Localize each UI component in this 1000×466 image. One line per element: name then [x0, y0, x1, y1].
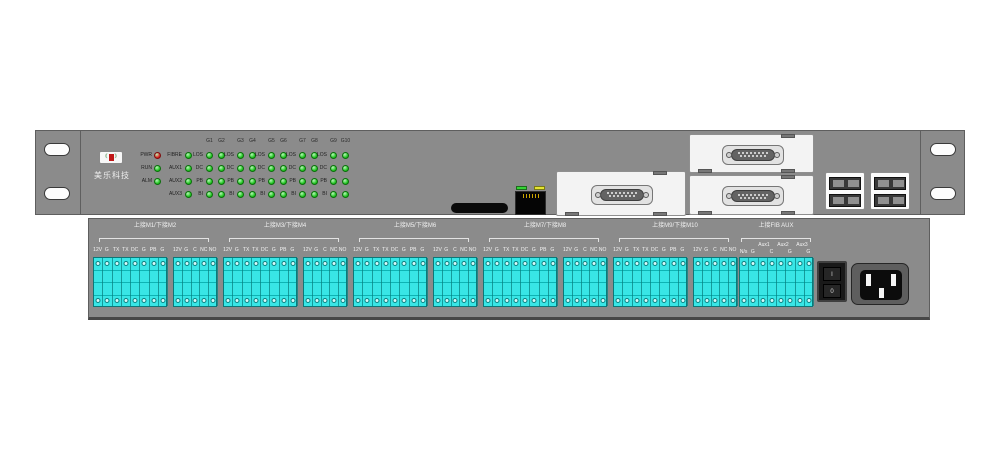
terminal-screw: [541, 298, 546, 303]
section-title: 上接M7/下接M8: [483, 223, 607, 230]
db15-shell: [731, 149, 775, 161]
section-title: 上接M9/下接M10: [613, 223, 737, 230]
mount-slot: [930, 187, 956, 200]
terminal-cell[interactable]: [512, 258, 521, 306]
terminal-cell[interactable]: [694, 258, 703, 306]
db15-module-plate: [689, 175, 814, 215]
terminal-cell[interactable]: [460, 258, 469, 306]
terminal-cell[interactable]: [530, 258, 539, 306]
terminal-screw: [96, 261, 101, 266]
terminal-cell[interactable]: [354, 258, 363, 306]
terminal-cell[interactable]: [270, 258, 279, 306]
terminal-screw: [253, 261, 258, 266]
terminal-screw: [788, 298, 793, 303]
section-bracket: [619, 238, 729, 242]
terminal-label: G: [801, 249, 816, 255]
terminal-cell[interactable]: [768, 258, 777, 306]
terminal-cell[interactable]: [304, 258, 313, 306]
led-label-channel: PB: [253, 178, 265, 185]
terminal-screw: [592, 261, 597, 266]
terminal-cell[interactable]: [540, 258, 549, 306]
power-inlet-face: [860, 270, 902, 300]
fiber-duplex-adapter[interactable]: [874, 194, 906, 207]
terminal-screw: [532, 298, 537, 303]
section-title: 上接FIB AUX: [731, 223, 821, 230]
inlet-prong: [879, 288, 884, 298]
terminal-screw: [272, 298, 277, 303]
terminal-cell[interactable]: [280, 258, 289, 306]
plate-tab: [653, 171, 667, 175]
terminal-cell[interactable]: [330, 258, 339, 306]
terminal-screw: [671, 298, 676, 303]
terminal-cell[interactable]: [805, 258, 814, 306]
power-switch[interactable]: I 0: [817, 261, 847, 302]
terminal-screw: [713, 261, 718, 266]
db15-pin: [766, 194, 768, 196]
terminal-cell[interactable]: [183, 258, 192, 306]
status-led: [206, 178, 213, 185]
terminal-screw: [365, 298, 370, 303]
terminal-cell[interactable]: [373, 258, 382, 306]
terminal-cell[interactable]: [623, 258, 632, 306]
front-panel: 《 》 美乐科技 G1G2G3G4G5G6G7G8G9G10PWRFIBRELO…: [35, 130, 965, 215]
terminal-cell[interactable]: [642, 258, 651, 306]
db15-shell: [600, 189, 644, 201]
terminal-cell[interactable]: [729, 258, 738, 306]
terminal-screw: [105, 298, 110, 303]
terminal-screw: [550, 261, 555, 266]
terminal-cell[interactable]: [150, 258, 159, 306]
db15-screw: [774, 193, 780, 199]
db15-pin: [758, 152, 760, 154]
status-led: [299, 165, 306, 172]
status-led: [237, 165, 244, 172]
terminal-screw: [383, 298, 388, 303]
led-group-header: G8: [307, 138, 322, 144]
terminal-screw: [281, 261, 286, 266]
db15-pin: [764, 197, 766, 199]
status-led: [237, 152, 244, 159]
terminal-screw: [806, 261, 811, 266]
status-led: [154, 165, 161, 172]
status-led: [299, 178, 306, 185]
db15-connector[interactable]: [591, 185, 653, 205]
terminal-cell[interactable]: [720, 258, 729, 306]
db15-connector[interactable]: [722, 145, 784, 165]
terminal-screw: [332, 261, 337, 266]
terminal-screw: [583, 298, 588, 303]
led-label-channel: LOS: [284, 152, 296, 159]
db15-pin: [633, 195, 635, 197]
terminal-cell[interactable]: [712, 258, 721, 306]
terminal-screw: [314, 298, 319, 303]
status-led: [154, 152, 161, 159]
fiber-port: [878, 197, 889, 204]
db15-pin-row: [740, 197, 766, 199]
terminal-cell[interactable]: [493, 258, 502, 306]
terminal-screw: [695, 298, 700, 303]
db15-pin: [611, 192, 613, 194]
terminal-screw: [444, 298, 449, 303]
terminal-screw: [281, 298, 286, 303]
db15-pin: [623, 192, 625, 194]
rj45-port[interactable]: [515, 186, 546, 215]
terminal-screw: [226, 298, 231, 303]
plate-tab: [698, 211, 712, 215]
terminal-screw: [444, 261, 449, 266]
terminal-screw: [565, 298, 570, 303]
db15-pin: [625, 195, 627, 197]
db15-screw: [774, 152, 780, 158]
terminal-screw: [323, 261, 328, 266]
terminal-screw: [513, 298, 518, 303]
terminal-label: G: [745, 249, 760, 255]
led-label-channel: DC: [315, 165, 327, 172]
activity-led-yellow: [534, 186, 545, 190]
terminal-screw: [513, 261, 518, 266]
db15-pin: [754, 194, 756, 196]
terminal-screw: [486, 261, 491, 266]
terminal-cell[interactable]: [410, 258, 419, 306]
terminal-screw: [356, 261, 361, 266]
db15-pin: [752, 197, 754, 199]
terminal-screw: [574, 261, 579, 266]
terminal-cell[interactable]: [564, 258, 573, 306]
terminal-screw: [253, 298, 258, 303]
terminal-cell[interactable]: [443, 258, 452, 306]
terminal-screw: [731, 298, 736, 303]
terminal-screw: [806, 298, 811, 303]
led-label-channel: PB: [315, 178, 327, 185]
terminal-cell[interactable]: [796, 258, 805, 306]
db15-pin-row: [609, 195, 635, 197]
status-led: [342, 178, 349, 185]
terminal-block-relay[interactable]: [693, 257, 737, 307]
terminal-screw: [532, 261, 537, 266]
terminal-screw: [495, 298, 500, 303]
status-led: [330, 178, 337, 185]
led-label-channel: BI: [222, 191, 234, 198]
terminal-cell[interactable]: [749, 258, 758, 306]
led-label-aux: AUX2: [162, 178, 182, 185]
terminal-screw: [680, 261, 685, 266]
plate-tab: [565, 212, 579, 216]
mount-slot: [44, 143, 70, 156]
db15-pin-row: [738, 194, 768, 196]
terminal-screw: [435, 298, 440, 303]
terminal-cell[interactable]: [703, 258, 712, 306]
terminal-cell[interactable]: [174, 258, 183, 306]
terminal-screw: [601, 298, 606, 303]
plate-tab: [781, 134, 795, 138]
db15-pin: [627, 192, 629, 194]
terminal-cell[interactable]: [322, 258, 331, 306]
plate-tab: [698, 169, 712, 173]
terminal-cell[interactable]: [103, 258, 112, 306]
terminal-cell[interactable]: [192, 258, 201, 306]
terminal-cell[interactable]: [400, 258, 409, 306]
aux-channel-label: Aux1: [755, 242, 773, 248]
terminal-cell[interactable]: [599, 258, 608, 306]
terminal-cell[interactable]: [452, 258, 461, 306]
led-label-aux: AUX1: [162, 165, 182, 172]
db15-pin: [764, 155, 766, 157]
status-led: [237, 191, 244, 198]
terminal-cell[interactable]: [94, 258, 103, 306]
terminal-screw: [634, 261, 639, 266]
terminal-screw: [420, 298, 425, 303]
db15-module-plate: [689, 134, 814, 173]
terminal-screw: [713, 298, 718, 303]
terminal-screw: [453, 261, 458, 266]
terminal-cell[interactable]: [382, 258, 391, 306]
terminal-cell[interactable]: [484, 258, 493, 306]
terminal-screw: [722, 261, 727, 266]
terminal-cell[interactable]: [590, 258, 599, 306]
terminal-cell[interactable]: [759, 258, 768, 306]
terminal-label: NO: [335, 247, 350, 253]
db15-pin: [613, 195, 615, 197]
terminal-screw: [290, 298, 295, 303]
terminal-cell[interactable]: [419, 258, 428, 306]
db15-connector[interactable]: [722, 186, 784, 206]
db15-pin: [748, 197, 750, 199]
status-led: [268, 152, 275, 159]
terminal-screw: [751, 298, 756, 303]
terminal-screw: [393, 298, 398, 303]
terminal-cell[interactable]: [651, 258, 660, 306]
terminal-cell[interactable]: [243, 258, 252, 306]
terminal-block-relay[interactable]: [433, 257, 477, 307]
led-label-channel: DC: [222, 165, 234, 172]
terminal-block-main[interactable]: [353, 257, 427, 307]
right-ear-divider: [920, 131, 921, 214]
device-drawing: 《 》 美乐科技 G1G2G3G4G5G6G7G8G9G10PWRFIBRELO…: [0, 0, 1000, 466]
terminal-cell[interactable]: [131, 258, 140, 306]
rear-panel: I 0 上接M1/下接M212VGTXTXDCGPBG12VGCNCNO上接M3…: [88, 218, 930, 320]
db15-pin: [617, 195, 619, 197]
terminal-screw: [341, 261, 346, 266]
terminal-cell[interactable]: [363, 258, 372, 306]
status-led: [268, 191, 275, 198]
led-label-channel: LOS: [315, 152, 327, 159]
terminal-cell[interactable]: [633, 258, 642, 306]
terminal-cell[interactable]: [670, 258, 679, 306]
terminal-block-main[interactable]: [223, 257, 297, 307]
led-label-channel: LOS: [191, 152, 203, 159]
terminal-cell[interactable]: [786, 258, 795, 306]
db15-pin-row: [740, 155, 766, 157]
db15-pin: [756, 155, 758, 157]
led-label-channel: LOS: [253, 152, 265, 159]
terminal-screw: [504, 261, 509, 266]
brand-emblem-icon: [109, 154, 114, 161]
terminal-screw: [435, 261, 440, 266]
status-led: [342, 165, 349, 172]
terminal-screw: [760, 261, 765, 266]
terminal-screw: [365, 261, 370, 266]
terminal-cell[interactable]: [252, 258, 261, 306]
status-led: [342, 152, 349, 159]
terminal-screw: [583, 261, 588, 266]
terminal-cell[interactable]: [224, 258, 233, 306]
terminal-screw: [114, 261, 119, 266]
db15-pin: [740, 197, 742, 199]
terminal-screw: [263, 261, 268, 266]
laurel-left-icon: 《: [102, 155, 107, 160]
terminal-screw: [244, 261, 249, 266]
terminal-block-relay[interactable]: [563, 257, 607, 307]
terminal-cell[interactable]: [233, 258, 242, 306]
terminal-screw: [680, 298, 685, 303]
terminal-screw: [722, 298, 727, 303]
terminal-cell[interactable]: [339, 258, 348, 306]
terminal-cell[interactable]: [434, 258, 443, 306]
power-switch-on[interactable]: I: [823, 267, 841, 281]
db15-pin: [629, 195, 631, 197]
terminal-screw: [393, 261, 398, 266]
db15-pin: [762, 152, 764, 154]
terminal-screw: [290, 261, 295, 266]
section-bracket: [99, 238, 209, 242]
terminal-screw: [486, 298, 491, 303]
power-inlet[interactable]: [851, 263, 909, 305]
terminal-screw: [142, 261, 147, 266]
fiber-port: [893, 180, 904, 187]
terminal-cell[interactable]: [777, 258, 786, 306]
terminal-screw: [797, 298, 802, 303]
terminal-screw: [184, 261, 189, 266]
status-led: [154, 178, 161, 185]
brand-logo: 《 》: [99, 151, 123, 164]
terminal-screw: [202, 298, 207, 303]
rj45-pins: [523, 194, 539, 198]
terminal-cell[interactable]: [469, 258, 478, 306]
terminal-cell[interactable]: [140, 258, 149, 306]
terminal-cell[interactable]: [549, 258, 558, 306]
terminal-screw: [383, 261, 388, 266]
terminal-screw: [235, 261, 240, 266]
terminal-block-relay[interactable]: [173, 257, 217, 307]
status-led: [206, 152, 213, 159]
terminal-cell[interactable]: [289, 258, 298, 306]
terminal-screw: [671, 261, 676, 266]
terminal-cell[interactable]: [209, 258, 218, 306]
db15-pin: [746, 194, 748, 196]
terminal-cell[interactable]: [740, 258, 749, 306]
terminal-cell[interactable]: [521, 258, 530, 306]
db15-screw: [726, 193, 732, 199]
terminal-cell[interactable]: [261, 258, 270, 306]
terminal-cell[interactable]: [614, 258, 623, 306]
terminal-cell[interactable]: [503, 258, 512, 306]
terminal-cell[interactable]: [159, 258, 168, 306]
section-title: 上接M5/下接M6: [353, 223, 477, 230]
db15-pin: [744, 155, 746, 157]
terminal-screw: [175, 261, 180, 266]
terminal-screw: [133, 298, 138, 303]
terminal-cell[interactable]: [391, 258, 400, 306]
terminal-screw: [160, 298, 165, 303]
terminal-screw: [123, 298, 128, 303]
section-bracket: [489, 238, 599, 242]
terminal-label: G: [155, 247, 170, 253]
terminal-screw: [616, 298, 621, 303]
fiber-port: [893, 197, 904, 204]
power-switch-off[interactable]: 0: [823, 284, 841, 298]
terminal-screw: [523, 298, 528, 303]
fiber-duplex-adapter[interactable]: [829, 177, 861, 190]
terminal-block-aux[interactable]: [739, 257, 813, 307]
db15-pin: [738, 152, 740, 154]
terminal-cell[interactable]: [679, 258, 688, 306]
terminal-screw: [634, 298, 639, 303]
terminal-block-main[interactable]: [93, 257, 167, 307]
terminal-cell[interactable]: [200, 258, 209, 306]
terminal-screw: [96, 298, 101, 303]
fiber-duplex-adapter[interactable]: [874, 177, 906, 190]
fiber-port: [848, 197, 859, 204]
terminal-cell[interactable]: [122, 258, 131, 306]
led-label-aux: FIBRE: [162, 152, 182, 159]
terminal-screw: [244, 298, 249, 303]
terminal-screw: [742, 298, 747, 303]
terminal-screw: [742, 261, 747, 266]
status-led: [268, 165, 275, 172]
terminal-screw: [471, 298, 476, 303]
status-led: [206, 165, 213, 172]
terminal-label: G: [415, 247, 430, 253]
terminal-block-main[interactable]: [483, 257, 557, 307]
terminal-cell[interactable]: [582, 258, 591, 306]
terminal-cell[interactable]: [113, 258, 122, 306]
terminal-cell[interactable]: [573, 258, 582, 306]
terminal-screw: [341, 298, 346, 303]
card-slot[interactable]: [451, 203, 508, 213]
terminal-screw: [541, 261, 546, 266]
db15-shell: [731, 190, 775, 202]
db15-pin: [742, 194, 744, 196]
section-title: 上接M1/下接M2: [93, 223, 217, 230]
db15-pin: [742, 152, 744, 154]
db15-pin: [621, 195, 623, 197]
terminal-screw: [769, 298, 774, 303]
terminal-cell[interactable]: [660, 258, 669, 306]
db15-pin: [619, 192, 621, 194]
terminal-cell[interactable]: [313, 258, 322, 306]
fiber-duplex-adapter[interactable]: [829, 194, 861, 207]
section-bracket: [359, 238, 469, 242]
db15-pin: [754, 152, 756, 154]
db15-pin: [746, 152, 748, 154]
db15-pin: [615, 192, 617, 194]
terminal-screw: [504, 298, 509, 303]
plate-tab: [653, 212, 667, 216]
terminal-block-main[interactable]: [613, 257, 687, 307]
led-label-channel: BI: [253, 191, 265, 198]
led-label-status: RUN: [132, 165, 152, 172]
terminal-screw: [695, 261, 700, 266]
status-led: [299, 191, 306, 198]
terminal-screw: [592, 298, 597, 303]
terminal-screw: [643, 261, 648, 266]
terminal-screw: [704, 298, 709, 303]
terminal-screw: [471, 261, 476, 266]
status-led: [206, 191, 213, 198]
terminal-block-relay[interactable]: [303, 257, 347, 307]
terminal-screw: [175, 298, 180, 303]
terminal-label: G: [782, 249, 797, 255]
